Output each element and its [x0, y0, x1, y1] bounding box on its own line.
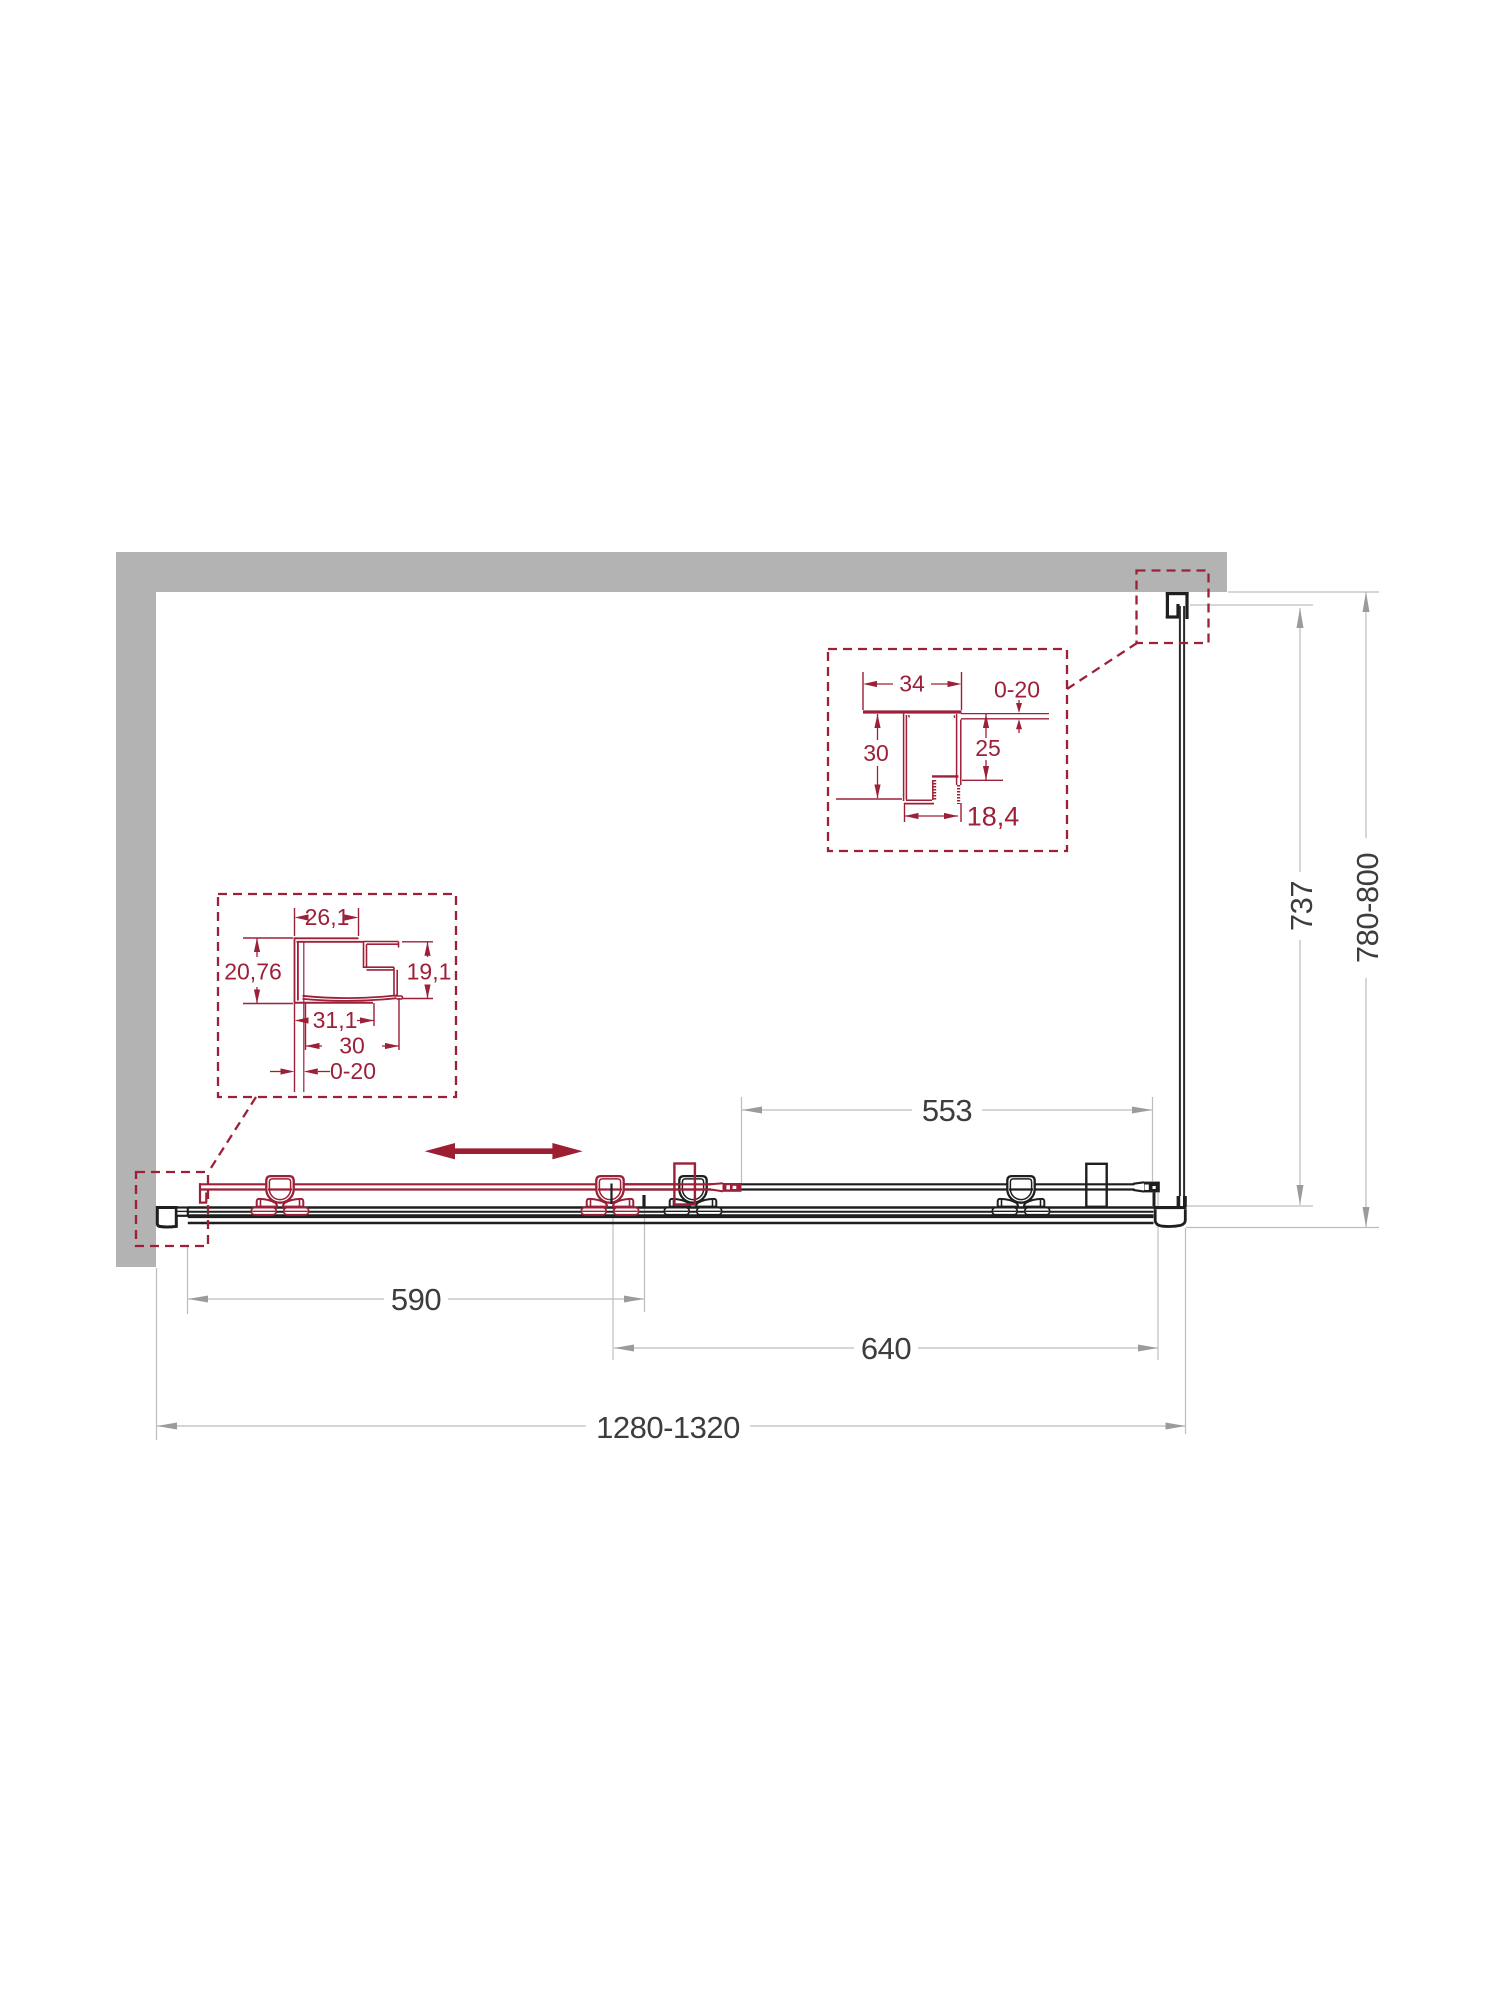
svg-text:640: 640	[861, 1331, 911, 1366]
svg-text:737: 737	[1284, 881, 1319, 931]
svg-text:0-20: 0-20	[994, 677, 1040, 703]
svg-text:590: 590	[391, 1282, 441, 1317]
svg-text:25: 25	[975, 735, 1001, 761]
svg-text:19,1: 19,1	[407, 959, 452, 985]
svg-text:20,76: 20,76	[224, 959, 282, 985]
svg-text:18,4: 18,4	[967, 802, 1020, 832]
svg-text:1280-1320: 1280-1320	[596, 1410, 740, 1445]
svg-text:553: 553	[922, 1093, 972, 1128]
svg-text:31,1: 31,1	[313, 1007, 358, 1033]
svg-text:30: 30	[339, 1033, 365, 1059]
svg-text:34: 34	[899, 671, 925, 697]
svg-text:0-20: 0-20	[330, 1058, 376, 1084]
svg-text:30: 30	[863, 740, 889, 766]
svg-text:26,1: 26,1	[305, 904, 350, 930]
svg-text:780-800: 780-800	[1350, 853, 1385, 964]
